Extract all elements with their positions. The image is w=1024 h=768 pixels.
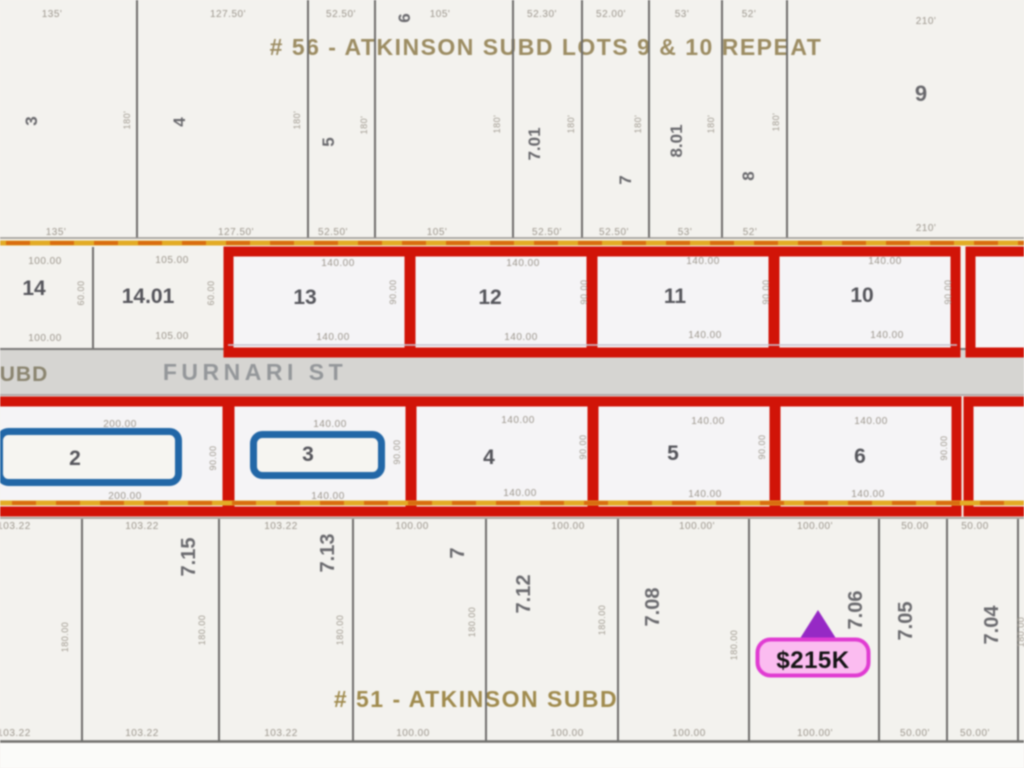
svg-text:140.00: 140.00 xyxy=(854,416,888,427)
svg-text:90.00: 90.00 xyxy=(757,434,767,459)
svg-text:140.00: 140.00 xyxy=(851,489,885,500)
svg-text:7.08: 7.08 xyxy=(642,588,664,627)
svg-text:60.00: 60.00 xyxy=(206,280,216,305)
svg-text:100.00: 100.00 xyxy=(672,728,706,739)
svg-text:140.00: 140.00 xyxy=(870,330,904,341)
svg-text:90.00: 90.00 xyxy=(939,435,949,460)
svg-text:90.00: 90.00 xyxy=(392,439,402,464)
svg-text:140.00: 140.00 xyxy=(321,258,355,269)
svg-text:7.05: 7.05 xyxy=(895,602,917,641)
svg-text:12: 12 xyxy=(478,286,501,309)
svg-text:140.00: 140.00 xyxy=(868,256,902,267)
svg-text:140.00: 140.00 xyxy=(311,491,345,502)
svg-text:100.00': 100.00' xyxy=(797,728,833,739)
svg-text:14.01: 14.01 xyxy=(122,285,175,308)
svg-text:140.00: 140.00 xyxy=(686,256,720,267)
svg-text:52.50': 52.50' xyxy=(326,9,356,20)
svg-text:52.00': 52.00' xyxy=(596,9,626,20)
svg-text:100.00': 100.00' xyxy=(797,521,833,532)
svg-text:4: 4 xyxy=(170,117,189,127)
svg-text:180': 180' xyxy=(771,113,781,132)
svg-text:200.00: 200.00 xyxy=(103,419,137,430)
svg-text:6: 6 xyxy=(395,13,414,22)
svg-text:2: 2 xyxy=(69,447,81,470)
svg-text:7: 7 xyxy=(447,547,469,558)
svg-text:105.00: 105.00 xyxy=(155,255,189,266)
svg-text:# 51 - ATKINSON SUBD: # 51 - ATKINSON SUBD xyxy=(334,686,618,712)
svg-text:103.22: 103.22 xyxy=(264,728,298,739)
svg-text:180.00: 180.00 xyxy=(335,615,345,646)
svg-text:10: 10 xyxy=(850,284,873,307)
svg-text:FURNARI ST: FURNARI ST xyxy=(163,359,347,385)
svg-text:135': 135' xyxy=(46,227,67,238)
svg-text:4: 4 xyxy=(483,446,495,469)
svg-text:7.06: 7.06 xyxy=(845,591,867,630)
svg-text:103.22: 103.22 xyxy=(0,728,31,739)
svg-text:52': 52' xyxy=(742,9,757,20)
svg-text:5: 5 xyxy=(667,442,679,465)
svg-text:53': 53' xyxy=(675,9,690,20)
svg-text:14: 14 xyxy=(22,277,46,300)
svg-text:100.00: 100.00 xyxy=(551,521,585,532)
svg-text:127.50': 127.50' xyxy=(218,227,254,238)
svg-text:180': 180' xyxy=(122,111,132,130)
svg-text:103.22: 103.22 xyxy=(125,521,159,532)
svg-text:60.00: 60.00 xyxy=(76,280,86,305)
svg-text:180': 180' xyxy=(633,115,643,134)
svg-text:7: 7 xyxy=(616,175,635,184)
svg-text:180': 180' xyxy=(359,116,369,135)
svg-text:52.50': 52.50' xyxy=(318,227,348,238)
svg-text:100.00': 100.00' xyxy=(679,521,715,532)
svg-text:210': 210' xyxy=(916,223,937,234)
svg-text:11: 11 xyxy=(664,285,687,308)
svg-text:52.50': 52.50' xyxy=(599,227,629,238)
svg-text:140.00: 140.00 xyxy=(506,258,540,269)
svg-text:6: 6 xyxy=(854,445,866,468)
svg-text:52': 52' xyxy=(743,227,758,238)
svg-text:100.00: 100.00 xyxy=(395,521,429,532)
svg-text:127.50': 127.50' xyxy=(210,9,246,20)
svg-text:UBD: UBD xyxy=(0,363,48,386)
svg-text:50.00: 50.00 xyxy=(961,521,989,532)
svg-text:50.00': 50.00' xyxy=(900,728,930,739)
svg-text:200.00: 200.00 xyxy=(108,491,142,502)
svg-text:103.22: 103.22 xyxy=(264,521,298,532)
svg-text:140.00: 140.00 xyxy=(691,416,725,427)
svg-text:180.00: 180.00 xyxy=(197,615,207,646)
svg-text:7.13: 7.13 xyxy=(317,534,339,573)
svg-text:100.00: 100.00 xyxy=(28,333,62,344)
svg-text:8.01: 8.01 xyxy=(667,124,686,157)
svg-text:100.00: 100.00 xyxy=(396,728,430,739)
svg-text:210': 210' xyxy=(916,16,937,27)
svg-text:103.22: 103.22 xyxy=(0,521,31,532)
svg-text:52.30': 52.30' xyxy=(527,9,557,20)
svg-text:90.00: 90.00 xyxy=(388,279,398,304)
svg-text:52.50': 52.50' xyxy=(532,227,562,238)
svg-text:53': 53' xyxy=(678,227,693,238)
svg-text:140.00: 140.00 xyxy=(501,415,535,426)
svg-text:50.00': 50.00' xyxy=(960,728,990,739)
svg-text:90.00: 90.00 xyxy=(761,279,771,304)
svg-text:140.00: 140.00 xyxy=(504,332,538,343)
svg-text:140.00: 140.00 xyxy=(313,419,347,430)
svg-text:90.00: 90.00 xyxy=(943,279,953,304)
svg-text:180.00: 180.00 xyxy=(729,630,739,661)
svg-text:105.00: 105.00 xyxy=(155,331,189,342)
svg-text:180.00: 180.00 xyxy=(467,607,477,638)
svg-text:9: 9 xyxy=(915,81,927,106)
svg-text:90.00: 90.00 xyxy=(579,279,589,304)
svg-text:7.15: 7.15 xyxy=(178,538,200,577)
svg-text:140.00: 140.00 xyxy=(688,489,722,500)
svg-text:7.04: 7.04 xyxy=(981,605,1003,645)
svg-text:180': 180' xyxy=(566,115,576,134)
svg-text:100.00: 100.00 xyxy=(28,256,62,267)
svg-text:90.00: 90.00 xyxy=(208,445,218,470)
svg-text:# 56 - ATKINSON SUBD LOTS 9 &: # 56 - ATKINSON SUBD LOTS 9 & 10 REPEAT xyxy=(270,34,823,60)
svg-text:135': 135' xyxy=(42,9,63,20)
svg-text:13: 13 xyxy=(293,286,316,309)
svg-text:105': 105' xyxy=(427,227,448,238)
svg-text:180': 180' xyxy=(706,115,716,134)
svg-text:180': 180' xyxy=(292,111,302,130)
svg-text:8: 8 xyxy=(739,171,758,180)
svg-text:5: 5 xyxy=(319,137,338,146)
svg-text:140.00: 140.00 xyxy=(316,332,350,343)
svg-text:103.22: 103.22 xyxy=(125,728,159,739)
svg-text:100.00: 100.00 xyxy=(550,728,584,739)
svg-text:180.00: 180.00 xyxy=(1016,617,1024,648)
svg-text:3: 3 xyxy=(22,116,41,125)
svg-text:105': 105' xyxy=(430,9,451,20)
svg-text:180': 180' xyxy=(492,115,502,134)
svg-text:3: 3 xyxy=(302,443,314,466)
svg-text:90.00: 90.00 xyxy=(578,434,588,459)
svg-text:140.00: 140.00 xyxy=(503,488,537,499)
svg-text:50.00: 50.00 xyxy=(901,521,929,532)
svg-text:180.00: 180.00 xyxy=(597,605,607,636)
svg-text:180.00: 180.00 xyxy=(60,622,70,653)
svg-text:7.01: 7.01 xyxy=(525,127,544,160)
svg-text:$215K: $215K xyxy=(776,647,849,674)
svg-text:7.12: 7.12 xyxy=(513,575,535,614)
svg-text:140.00: 140.00 xyxy=(688,330,722,341)
